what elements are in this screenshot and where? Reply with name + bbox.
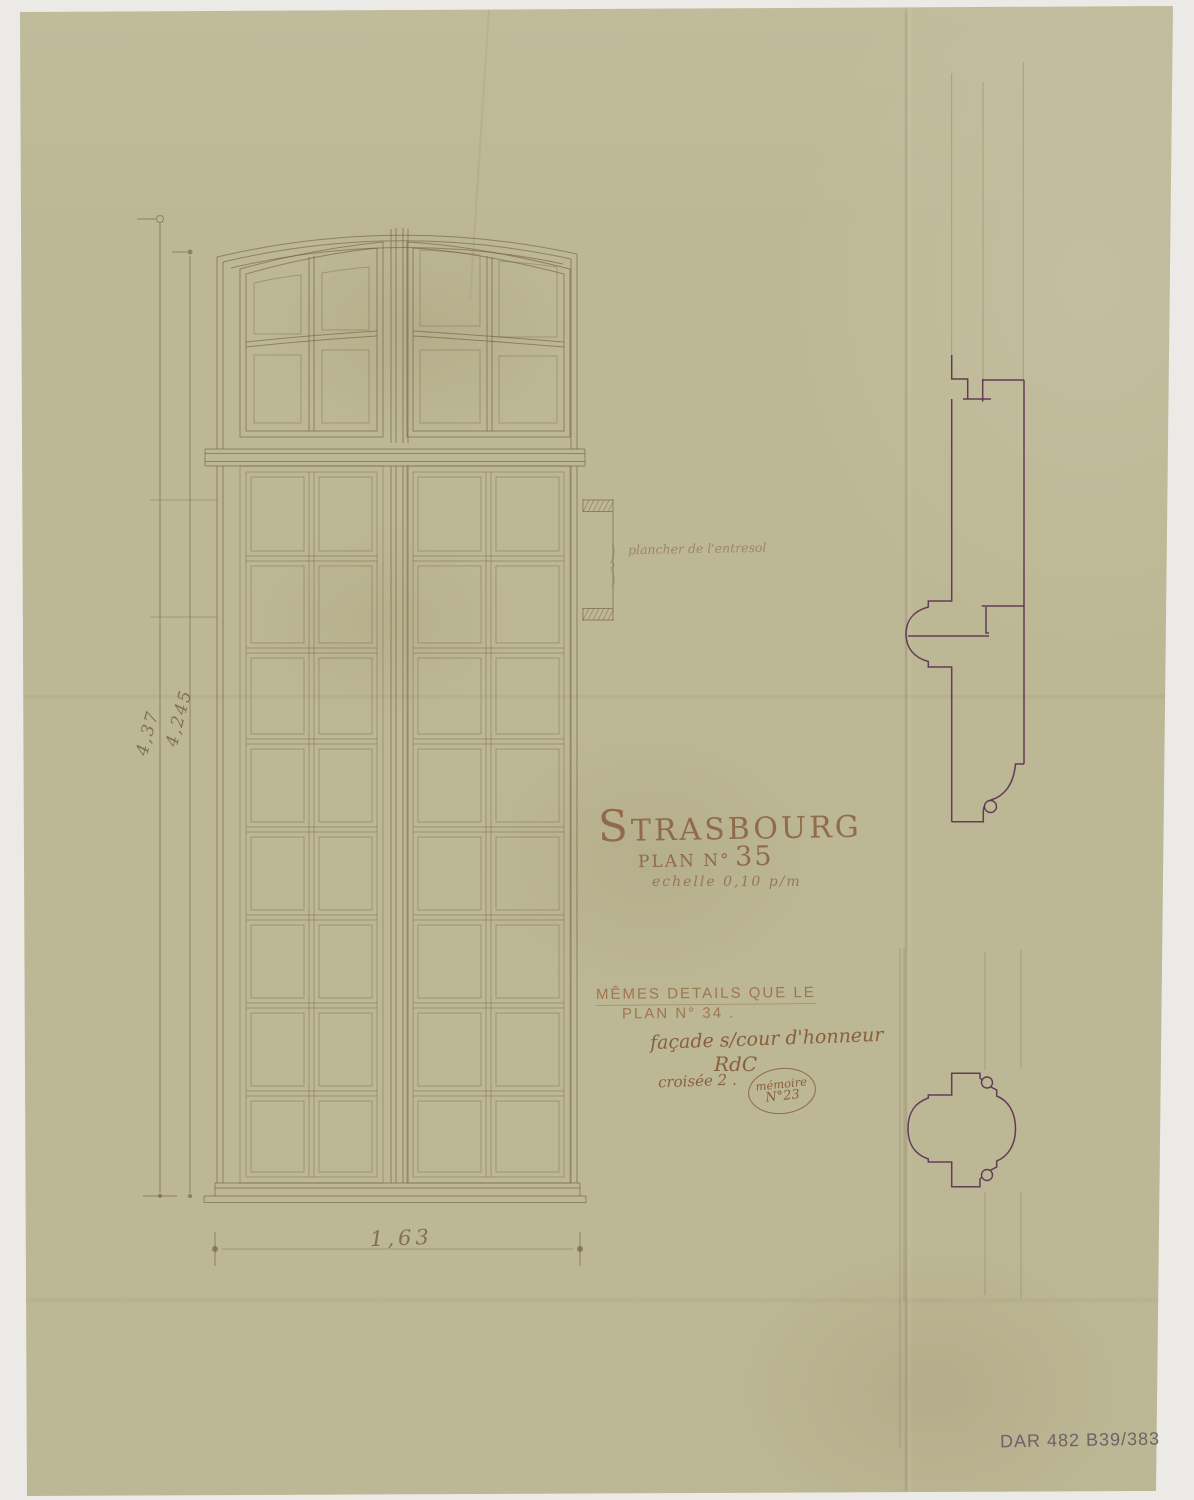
jamb-profile-section — [906, 355, 1024, 822]
drawing-linework — [0, 0, 1194, 1500]
plan-number-label: PLAN N° — [638, 851, 731, 873]
hatch-top — [583, 500, 613, 512]
annotation-entresol: plancher de l'entresol — [628, 540, 767, 557]
plan-number-value: 35 — [735, 841, 774, 873]
scanned-drawing-canvas: STRASBOURG PLAN N° 35 echelle 0,10 p/m M… — [0, 0, 1194, 1500]
pencil-guides — [900, 62, 1023, 1448]
note-same-details-line2: PLAN N° 34 . — [622, 1005, 736, 1023]
hatch-bottom — [583, 608, 613, 620]
mullion-profile-section — [908, 1073, 1016, 1186]
note-croisee: croisée 2 . — [658, 1071, 737, 1092]
scale-note: echelle 0,10 p/m — [652, 874, 802, 890]
dimension-width-bottom: 1,63 — [370, 1225, 434, 1251]
dimension-lines — [137, 216, 583, 1267]
memoire-number: N°23 — [765, 1088, 801, 1106]
archive-reference: DAR 482 B39/383 — [1000, 1429, 1160, 1453]
note-same-details-line1: MÊMES DETAILS QUE LE — [596, 984, 816, 1006]
entresol-slab-section — [150, 499, 614, 621]
window-pane-grid — [240, 466, 570, 1183]
paper-creases — [470, 10, 906, 1490]
window-elevation-frame — [204, 228, 586, 1203]
plan-number-line: PLAN N° 35 — [638, 841, 774, 874]
